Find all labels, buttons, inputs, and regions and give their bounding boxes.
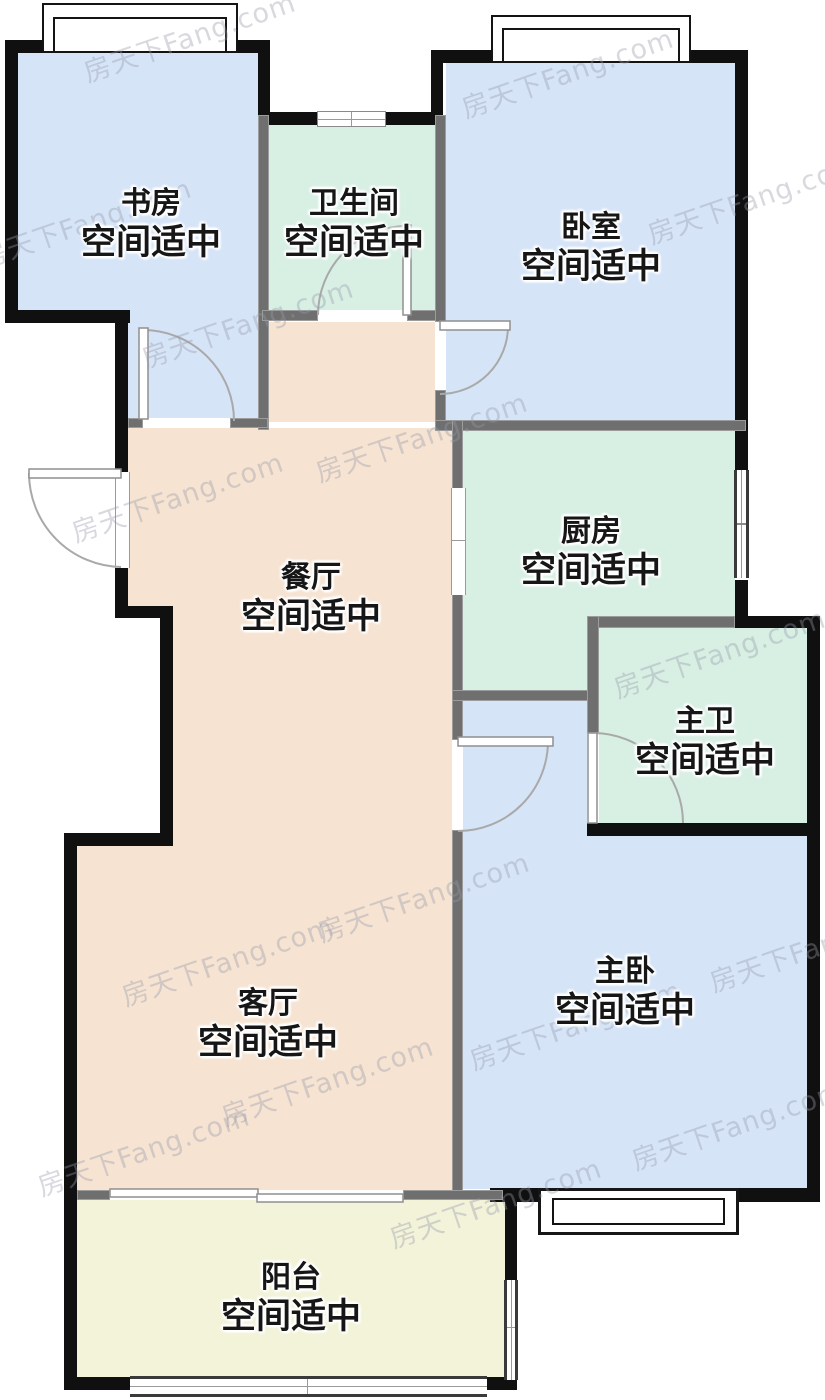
room-name: 卫生间 <box>234 186 474 222</box>
room-status: 空间适中 <box>148 1022 388 1064</box>
room-status: 空间适中 <box>171 1296 411 1338</box>
study-door <box>139 328 234 421</box>
room-status: 空间适中 <box>471 550 711 592</box>
room-label-dining: 餐厅 空间适中 <box>191 560 431 638</box>
balcony-sliding-door <box>110 1189 403 1202</box>
room-label-balcony: 阳台 空间适中 <box>171 1260 411 1338</box>
room-status: 空间适中 <box>471 246 711 288</box>
room-label-living: 客厅 空间适中 <box>148 986 388 1064</box>
entry-door <box>29 469 121 567</box>
room-label-kitchen: 厨房 空间适中 <box>471 514 711 592</box>
room-label-master-bath: 主卫 空间适中 <box>585 704 825 782</box>
room-label-bedroom: 卧室 空间适中 <box>471 210 711 288</box>
room-label-bathroom: 卫生间 空间适中 <box>234 186 474 264</box>
room-status: 空间适中 <box>191 596 431 638</box>
room-name: 主卧 <box>505 954 745 990</box>
room-name: 主卫 <box>585 704 825 740</box>
room-name: 阳台 <box>171 1260 411 1296</box>
room-status: 空间适中 <box>234 222 474 264</box>
room-name: 餐厅 <box>191 560 431 596</box>
hallway-door <box>458 737 553 831</box>
room-status: 空间适中 <box>585 740 825 782</box>
bedroom-door <box>440 321 510 394</box>
room-name: 卧室 <box>471 210 711 246</box>
room-label-master-bedroom: 主卧 空间适中 <box>505 954 745 1032</box>
floor-plan: 书房 空间适中 卫生间 空间适中 卧室 空间适中 餐厅 空间适中 厨房 空间适中… <box>0 0 825 1400</box>
room-status: 空间适中 <box>505 990 745 1032</box>
room-name: 厨房 <box>471 514 711 550</box>
room-name: 客厅 <box>148 986 388 1022</box>
